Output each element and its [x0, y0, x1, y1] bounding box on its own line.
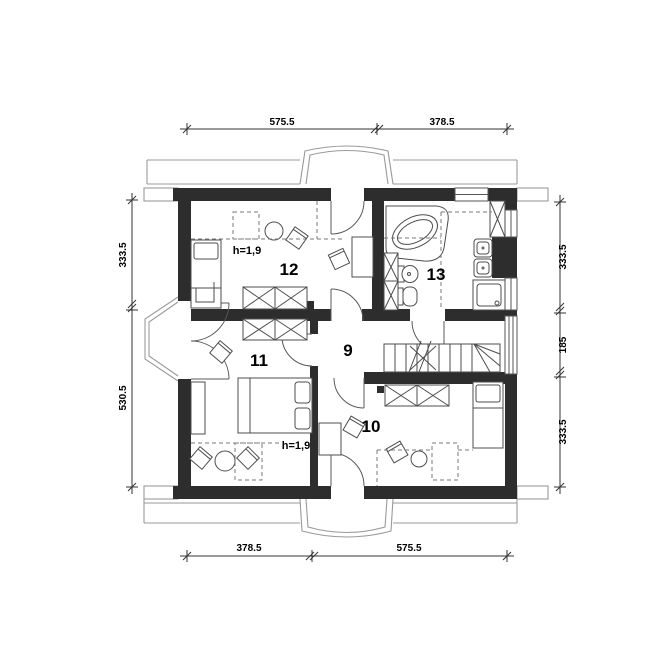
table-room10 [411, 451, 427, 467]
wall-top-left [173, 188, 331, 201]
bed-room12 [191, 240, 221, 308]
dimension-left: 333.5 530.5 [118, 193, 138, 494]
bed-room11 [238, 378, 312, 433]
wall-right-3 [505, 310, 517, 316]
room-label-11: 11 [250, 351, 268, 370]
shower [473, 280, 505, 310]
wall-bath-south-a [362, 309, 410, 321]
chair-room11-b [190, 447, 213, 470]
bidet [398, 266, 418, 283]
knee-height-label-room11: h=1,9 [282, 440, 310, 452]
toilet [398, 287, 417, 306]
window-bath-right-upper [505, 210, 517, 237]
wall-right-2 [505, 237, 517, 278]
eave-stub-top-right [517, 188, 548, 201]
dim-right-lower-value: 333.5 [558, 419, 569, 444]
room-label-10: 10 [362, 417, 381, 436]
sink-upper [474, 239, 492, 257]
wardrobe-room12 [243, 287, 307, 309]
furniture-bathroom [384, 201, 505, 310]
dim-right-middle-value: 185 [558, 336, 569, 353]
dim-top-right-value: 378.5 [429, 117, 454, 128]
floor-plan-drawing: 12 13 9 11 10 h=1,9 h=1,9 575.5 378.5 37… [0, 0, 660, 658]
desk-room12 [352, 237, 373, 277]
door-top-dormer [331, 201, 364, 234]
dim-right-upper-value: 333.5 [558, 244, 569, 269]
bath-cabinet [490, 201, 505, 237]
window-bath-right-lower [505, 278, 517, 310]
desk-room10 [319, 423, 341, 455]
wardrobe-room10 [385, 385, 449, 406]
table-room12 [265, 222, 283, 240]
room-label-12: 12 [280, 260, 299, 279]
window-bath-top [455, 188, 488, 201]
wall-room12-bath [372, 201, 384, 309]
bed-room10 [473, 382, 503, 448]
wardrobe-room11 [243, 319, 307, 340]
sink-lower [474, 259, 492, 277]
window-stair-landing [505, 316, 517, 374]
chair-room12-a [286, 227, 308, 249]
dresser-room11 [191, 382, 205, 434]
door-bottom-dormer [331, 453, 364, 486]
door-room12 [331, 289, 363, 321]
eave-stub-bottom-left [144, 486, 178, 499]
room-label-13: 13 [427, 265, 446, 284]
wall-top-right-a [364, 188, 455, 201]
dim-left-lower-value: 530.5 [118, 385, 129, 410]
wall-right-4 [505, 374, 517, 499]
door-room10 [334, 378, 364, 408]
table-room11 [215, 451, 235, 471]
knee-height-label-room12: h=1,9 [233, 245, 261, 257]
wall-room11-hall-a [310, 321, 318, 334]
furniture-room10 [319, 382, 503, 467]
dimension-bottom: 378.5 575.5 [180, 543, 514, 562]
chair-room10-b [386, 441, 408, 463]
dim-left-upper-value: 333.5 [118, 242, 129, 267]
stairs [384, 341, 500, 372]
chair-room11-a [210, 341, 233, 364]
dim-top-left-value: 575.5 [269, 117, 294, 128]
dimension-top: 575.5 378.5 [180, 117, 514, 135]
duct-shaft [384, 253, 398, 310]
eave-stub-top-left [144, 188, 178, 201]
dim-bottom-left-value: 378.5 [236, 543, 261, 554]
top-dormer-outline [300, 146, 393, 184]
room-label-9: 9 [343, 341, 352, 360]
wall-bottom-right [364, 486, 517, 499]
wall-post-a [307, 301, 314, 309]
dim-bottom-right-value: 575.5 [396, 543, 421, 554]
chair-room11-c [237, 447, 260, 470]
dimension-right: 333.5 185 333.5 [554, 195, 569, 494]
wall-bottom-left [173, 486, 331, 499]
wall-post-b [377, 386, 384, 393]
bay-window-outline [145, 297, 178, 381]
eave-stub-bottom-right [517, 486, 548, 499]
bottom-dormer-outline [300, 499, 393, 537]
chair-room12-b [328, 248, 349, 269]
skylight-room10 [432, 443, 458, 480]
wall-bath-south-b [445, 309, 505, 321]
wall-left-lower [178, 379, 191, 499]
wall-left-upper [178, 188, 191, 301]
skylight-room12 [233, 212, 259, 239]
floor-plan-page: 12 13 9 11 10 h=1,9 h=1,9 575.5 378.5 37… [0, 0, 660, 658]
wall-right-1 [505, 188, 517, 210]
bath-pier [492, 237, 505, 278]
